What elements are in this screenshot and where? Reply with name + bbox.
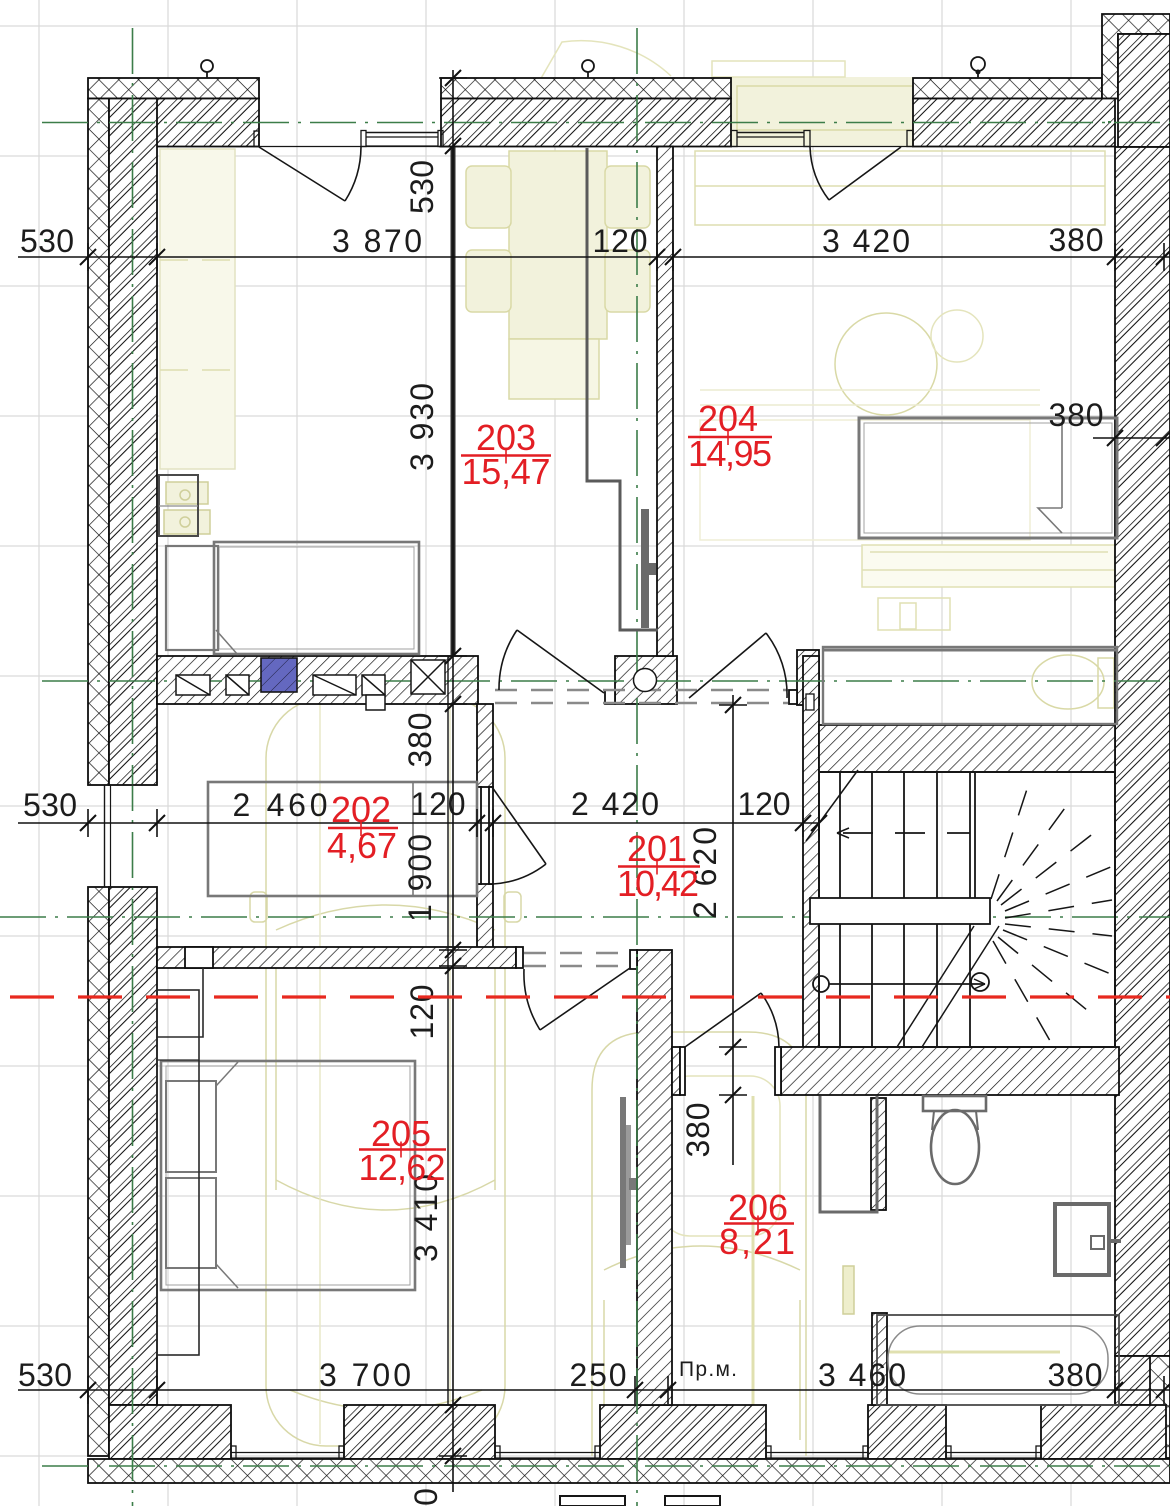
svg-text:530: 530	[20, 223, 74, 259]
svg-text:530: 530	[18, 1357, 72, 1393]
svg-text:3 700: 3 700	[319, 1357, 411, 1393]
svg-text:380: 380	[402, 713, 438, 768]
svg-text:8,21: 8,21	[719, 1221, 795, 1262]
svg-text:2 420: 2 420	[571, 786, 659, 822]
svg-text:202: 202	[331, 789, 391, 830]
svg-text:250: 250	[570, 1357, 627, 1393]
svg-text:3 930: 3 930	[404, 383, 440, 471]
svg-text:120: 120	[738, 786, 791, 822]
svg-text:380: 380	[680, 1103, 716, 1158]
svg-text:12,62: 12,62	[359, 1147, 446, 1188]
svg-text:530: 530	[404, 160, 440, 214]
svg-text:120: 120	[411, 786, 466, 822]
svg-text:15,47: 15,47	[462, 451, 551, 492]
svg-text:4,67: 4,67	[327, 825, 397, 866]
svg-text:10,42: 10,42	[617, 863, 699, 904]
svg-text:1 900: 1 900	[402, 834, 438, 922]
svg-text:14,95: 14,95	[688, 433, 772, 474]
svg-text:3 460: 3 460	[818, 1357, 906, 1393]
svg-text:380: 380	[1049, 397, 1104, 433]
svg-text:3 420: 3 420	[822, 223, 910, 259]
svg-text:120: 120	[404, 985, 440, 1040]
svg-text:530: 530	[23, 787, 77, 823]
svg-text:0: 0	[408, 1488, 444, 1506]
svg-text:Пр.м.: Пр.м.	[679, 1358, 737, 1381]
svg-text:3 870: 3 870	[332, 223, 422, 259]
svg-text:120: 120	[593, 223, 648, 259]
svg-text:380: 380	[1048, 1357, 1103, 1393]
svg-text:2 460: 2 460	[233, 787, 328, 823]
svg-text:380: 380	[1049, 222, 1104, 258]
